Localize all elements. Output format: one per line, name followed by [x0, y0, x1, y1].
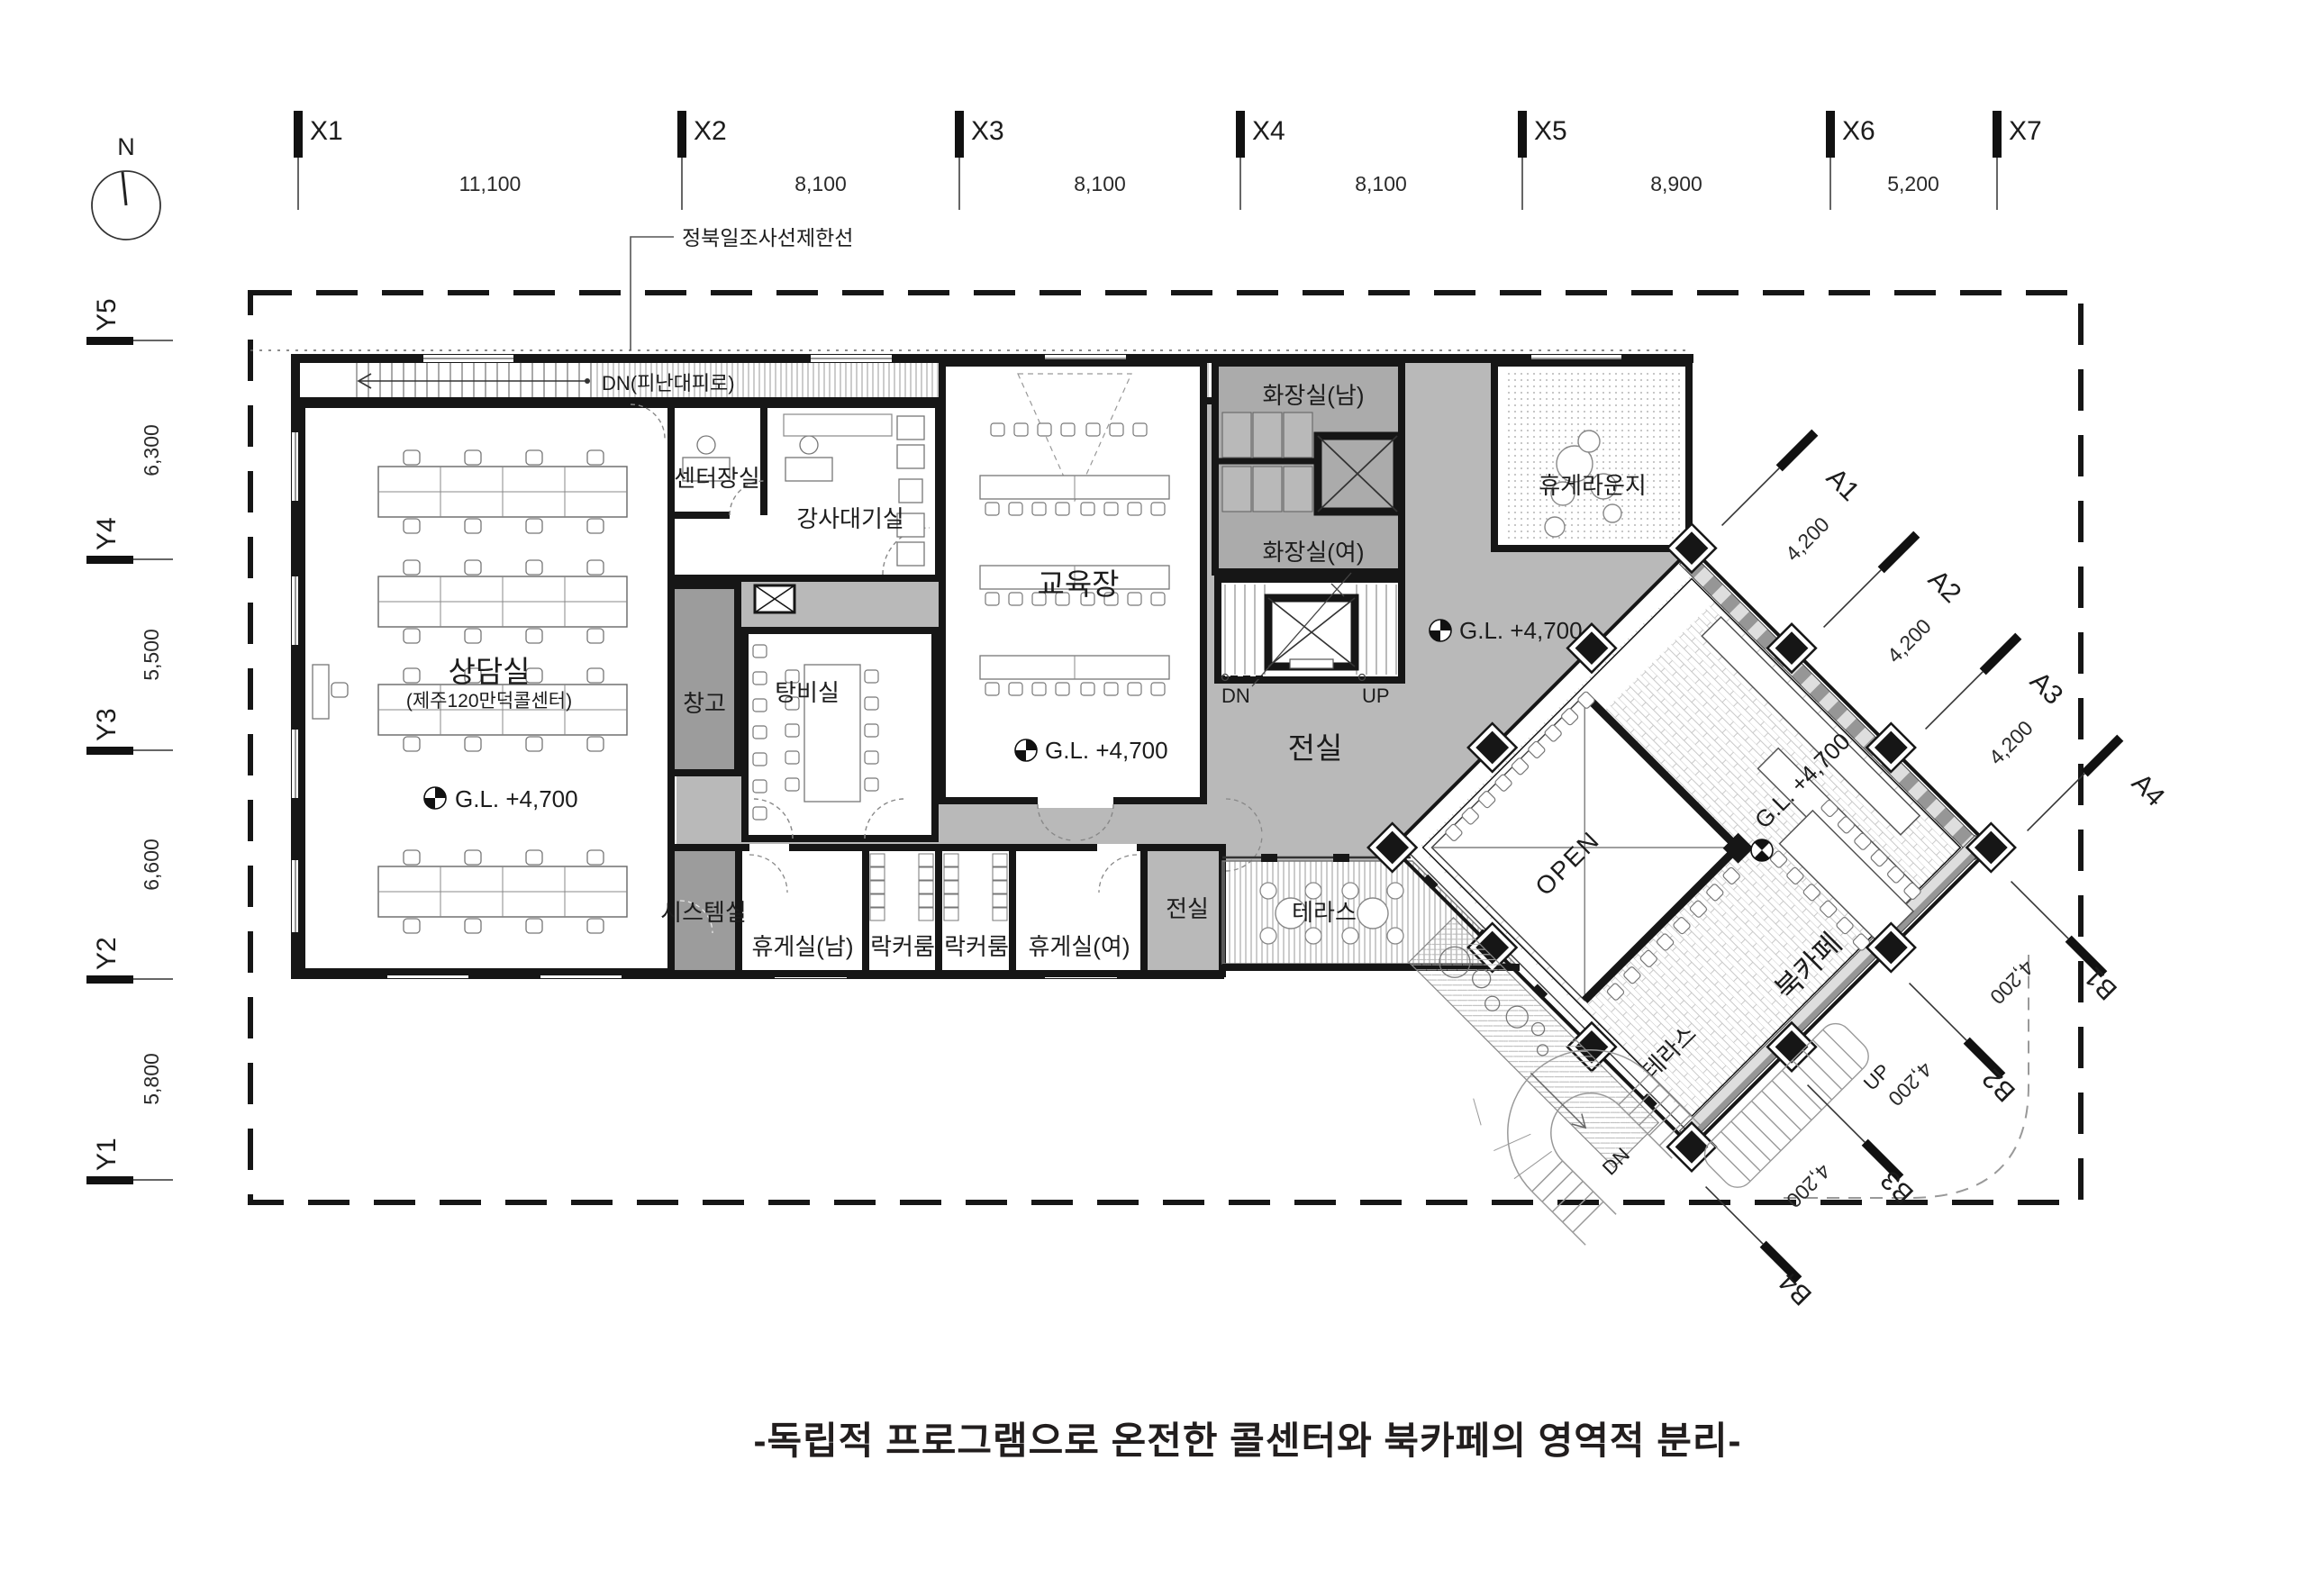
terrace-west-label: 테라스 — [1292, 899, 1357, 926]
room-pantry: 탕비실 — [745, 630, 935, 839]
grid-a1: A1 — [1820, 463, 1865, 507]
dim-x5-x6: 8,900 — [1650, 172, 1702, 195]
sangdamsil-sub-label: (제주120만덕콜센터) — [406, 691, 572, 712]
vestibule-hall-label: 전실 — [1288, 731, 1343, 765]
escape-dn-label: DN(피난대피로) — [602, 372, 735, 394]
grid-y4: Y4 — [92, 517, 122, 550]
grid-y: Y5 Y4 Y3 Y2 Y1 6,300 5,500 6,600 5,800 — [86, 298, 173, 1184]
pantry-label: 탕비실 — [775, 679, 840, 706]
toilet-m-label: 화장실(남) — [1263, 382, 1365, 409]
locker-b-label: 락커룸 — [944, 933, 1009, 960]
grid-x4: X4 — [1252, 116, 1285, 146]
grid-b4: B4 — [1774, 1266, 1818, 1310]
grid-a4: A4 — [2126, 768, 2170, 812]
toilet-f-label: 화장실(여) — [1263, 539, 1365, 566]
storage-label: 창고 — [683, 690, 726, 717]
dim-a1-a2: 4,200 — [1781, 512, 1834, 566]
instructor-wait-label: 강사대기실 — [796, 505, 904, 532]
system-label: 시스템실 — [660, 899, 747, 926]
gl-sangdamsil: G.L. +4,700 — [455, 785, 578, 812]
grid-y5: Y5 — [92, 298, 122, 331]
grid-x3: X3 — [971, 116, 1004, 146]
rest-f-label: 휴게실(여) — [1029, 933, 1130, 960]
lounge-label: 휴게라운지 — [1539, 472, 1647, 499]
vestibule-small-label: 전실 — [1166, 895, 1209, 922]
caption: -독립적 프로그램으로 온전한 콜센터와 북카페의 영역적 분리- — [754, 1419, 1742, 1462]
room-toilets: 화장실(남) 화장실(여) — [1215, 363, 1402, 572]
grid-x5: X5 — [1534, 116, 1567, 146]
bottom-strip-rooms: 시스템실 휴게실(남) 락커룸 락커룸 휴게실(여) 전실 — [660, 844, 1222, 974]
grid-a2: A2 — [1922, 565, 1966, 609]
setback-leader: 정북일조사선제한선 — [631, 226, 853, 350]
locker-a-label: 락커룸 — [870, 933, 935, 960]
setback-note: 정북일조사선제한선 — [682, 226, 853, 249]
grid-a3: A3 — [2024, 667, 2068, 711]
gl-education: G.L. +4,700 — [1045, 737, 1168, 764]
dim-x1-x2: 11,100 — [459, 172, 522, 195]
room-storage: 창고 — [671, 585, 738, 773]
dim-x3-x4: 8,100 — [1074, 172, 1126, 195]
education-label: 교육장 — [1037, 567, 1119, 601]
dim-a3-a4: 4,200 — [1984, 716, 2038, 769]
room-lounge: 휴게라운지 — [1494, 363, 1689, 549]
grid-x1: X1 — [310, 116, 343, 146]
grid-y1: Y1 — [92, 1138, 122, 1171]
north-compass-icon: N — [92, 133, 160, 240]
grid-x7: X7 — [2009, 116, 2042, 146]
dim-x2-x3: 8,100 — [794, 172, 847, 195]
grid-x2: X2 — [694, 116, 727, 146]
core-dn-label: DN — [1221, 685, 1250, 707]
floor-plan-drawing: N 정북일조사선제한선 X1 X2 X3 X4 X5 X6 X7 11,100 … — [0, 0, 2306, 1596]
rest-m-label: 휴게실(남) — [752, 933, 854, 960]
floor-plan-page: N 정북일조사선제한선 X1 X2 X3 X4 X5 X6 X7 11,100 … — [0, 0, 2306, 1596]
dim-y2-y1: 5,800 — [140, 1053, 163, 1105]
center-office-label: 센터장실 — [674, 465, 760, 492]
dim-a2-a3: 4,200 — [1883, 614, 1936, 667]
dim-b1-b2: 4,200 — [1985, 956, 2038, 1009]
dim-x6-x7: 5,200 — [1887, 172, 1939, 195]
grid-b1: B1 — [2079, 961, 2123, 1005]
grid-b2: B2 — [1977, 1063, 2021, 1107]
dim-x4-x5: 8,100 — [1355, 172, 1407, 195]
grid-y2: Y2 — [92, 937, 122, 970]
sangdamsil-label: 상담실 — [448, 655, 530, 688]
gl-hall: G.L. +4,700 — [1459, 617, 1583, 644]
room-education: 교육장 G.L. +4,700 — [942, 363, 1203, 840]
dim-y3-y2: 6,600 — [140, 839, 163, 891]
grid-x: X1 X2 X3 X4 X5 X6 X7 11,100 8,100 8,100 … — [294, 111, 2042, 210]
north-label: N — [117, 133, 135, 160]
dim-b2-b3: 4,200 — [1884, 1057, 1937, 1111]
dim-y4-y3: 5,500 — [140, 629, 163, 681]
room-offices: 센터장실 강사대기실 — [671, 404, 939, 578]
dim-y5-y4: 6,300 — [140, 424, 163, 476]
room-sangdamsil: 상담실 (제주120만덕콜센터) G.L. +4,700 — [302, 404, 671, 972]
grid-y3: Y3 — [92, 708, 122, 741]
core-up-label: UP — [1362, 685, 1390, 707]
grid-x6: X6 — [1842, 116, 1875, 146]
